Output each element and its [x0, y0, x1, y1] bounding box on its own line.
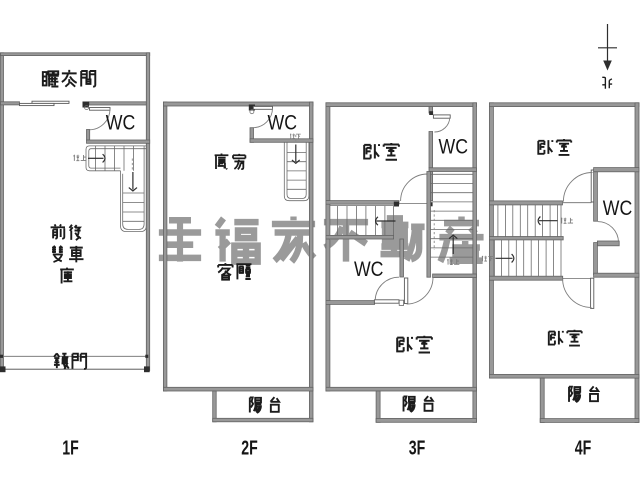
svg-text:4F: 4F — [575, 438, 592, 460]
svg-text:2F: 2F — [241, 438, 258, 460]
svg-text:3F: 3F — [409, 438, 426, 460]
svg-text:WC: WC — [354, 257, 384, 281]
svg-text:1F: 1F — [62, 438, 79, 460]
svg-text:WC: WC — [439, 135, 469, 159]
svg-text:WC: WC — [268, 111, 298, 135]
svg-text:WC: WC — [106, 111, 136, 135]
svg-text:WC: WC — [603, 196, 633, 220]
